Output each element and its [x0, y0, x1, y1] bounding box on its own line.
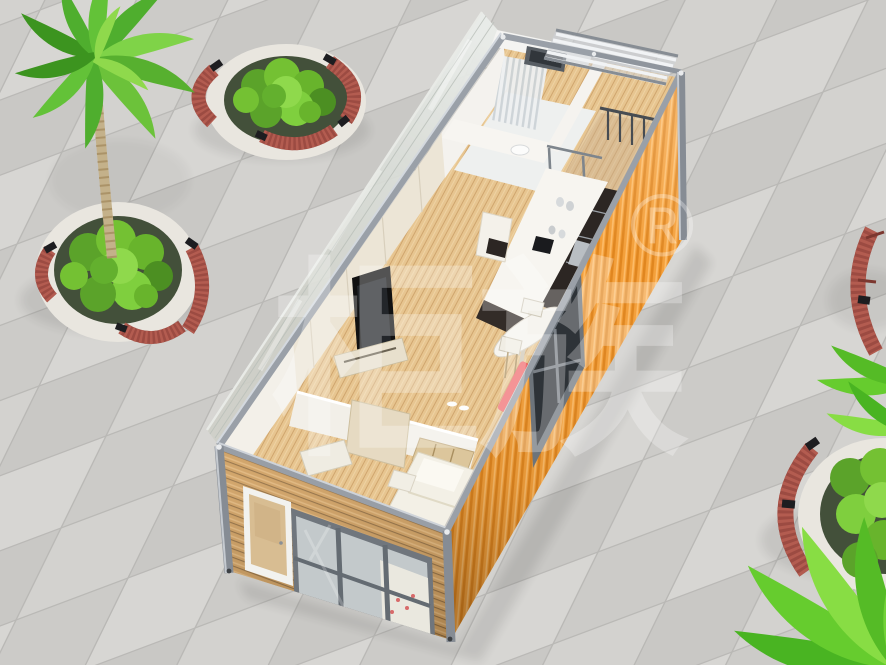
entry-door[interactable] — [243, 486, 293, 586]
front-right-post — [447, 531, 451, 642]
far-right-post — [681, 72, 683, 240]
render-canvas: 柜族 ® — [0, 0, 886, 665]
plaza-illustration — [0, 0, 886, 665]
